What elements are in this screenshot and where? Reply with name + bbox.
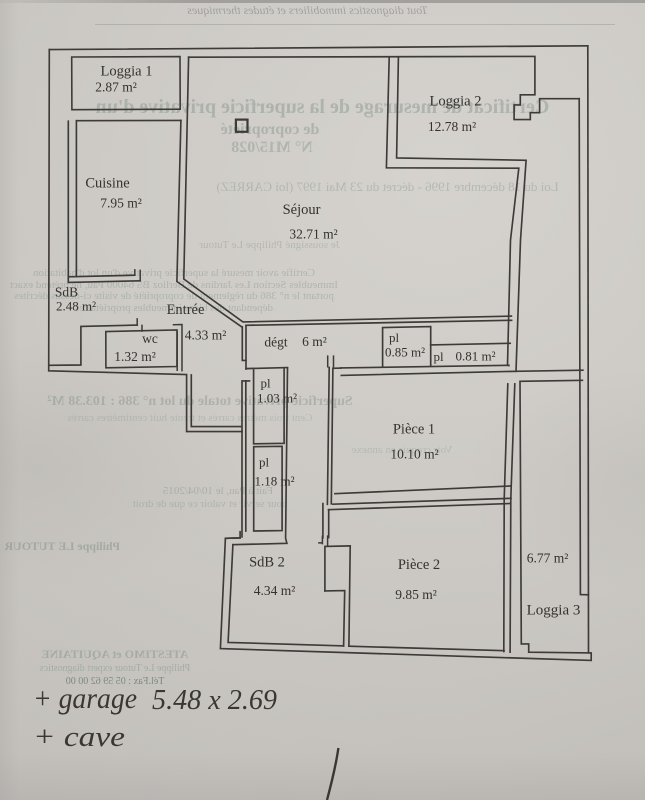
- svg-text:0.81 m²: 0.81 m²: [455, 348, 495, 363]
- svg-text:+ garage: + garage: [33, 682, 137, 715]
- svg-text:Loggia 2: Loggia 2: [430, 94, 482, 110]
- svg-text:32.71 m²: 32.71 m²: [289, 226, 337, 241]
- svg-text:1.18 m²: 1.18 m²: [254, 474, 294, 489]
- svg-text:pl: pl: [433, 349, 444, 364]
- svg-text:Loggia 1: Loggia 1: [101, 64, 153, 80]
- svg-text:Loggia 3: Loggia 3: [527, 603, 581, 619]
- svg-text:+ cave: + cave: [33, 722, 125, 753]
- svg-text:SdB: SdB: [55, 285, 78, 300]
- svg-text:6.77 m²: 6.77 m²: [527, 551, 569, 566]
- svg-text:pl: pl: [389, 330, 400, 345]
- svg-text:Cuisine: Cuisine: [85, 176, 129, 192]
- svg-text:5.48 x 2.69: 5.48 x 2.69: [152, 684, 277, 716]
- svg-text:Séjour: Séjour: [283, 202, 321, 218]
- svg-text:Entrée: Entrée: [167, 302, 205, 318]
- svg-text:SdB 2: SdB 2: [249, 555, 285, 571]
- svg-text:7.95 m²: 7.95 m²: [100, 196, 142, 211]
- svg-text:Pièce 1: Pièce 1: [393, 422, 435, 438]
- svg-text:2.48 m²: 2.48 m²: [56, 299, 96, 314]
- svg-text:dégt: dégt: [264, 335, 287, 350]
- svg-text:2.87 m²: 2.87 m²: [95, 80, 137, 95]
- svg-text:1.32 m²: 1.32 m²: [114, 349, 156, 364]
- svg-text:6 m²: 6 m²: [302, 334, 327, 349]
- svg-text:12.78 m²: 12.78 m²: [428, 119, 476, 134]
- svg-text:10.10 m²: 10.10 m²: [390, 447, 438, 462]
- svg-text:Pièce 2: Pièce 2: [398, 557, 440, 573]
- svg-text:4.33 m²: 4.33 m²: [185, 328, 227, 343]
- svg-text:pl: pl: [259, 455, 270, 470]
- svg-text:9.85 m²: 9.85 m²: [395, 587, 437, 602]
- svg-text:1.03 m²: 1.03 m²: [257, 391, 297, 406]
- svg-text:0.85 m²: 0.85 m²: [385, 345, 425, 360]
- svg-text:wc: wc: [142, 331, 158, 346]
- svg-text:4.34 m²: 4.34 m²: [254, 583, 296, 598]
- svg-text:pl: pl: [260, 376, 271, 391]
